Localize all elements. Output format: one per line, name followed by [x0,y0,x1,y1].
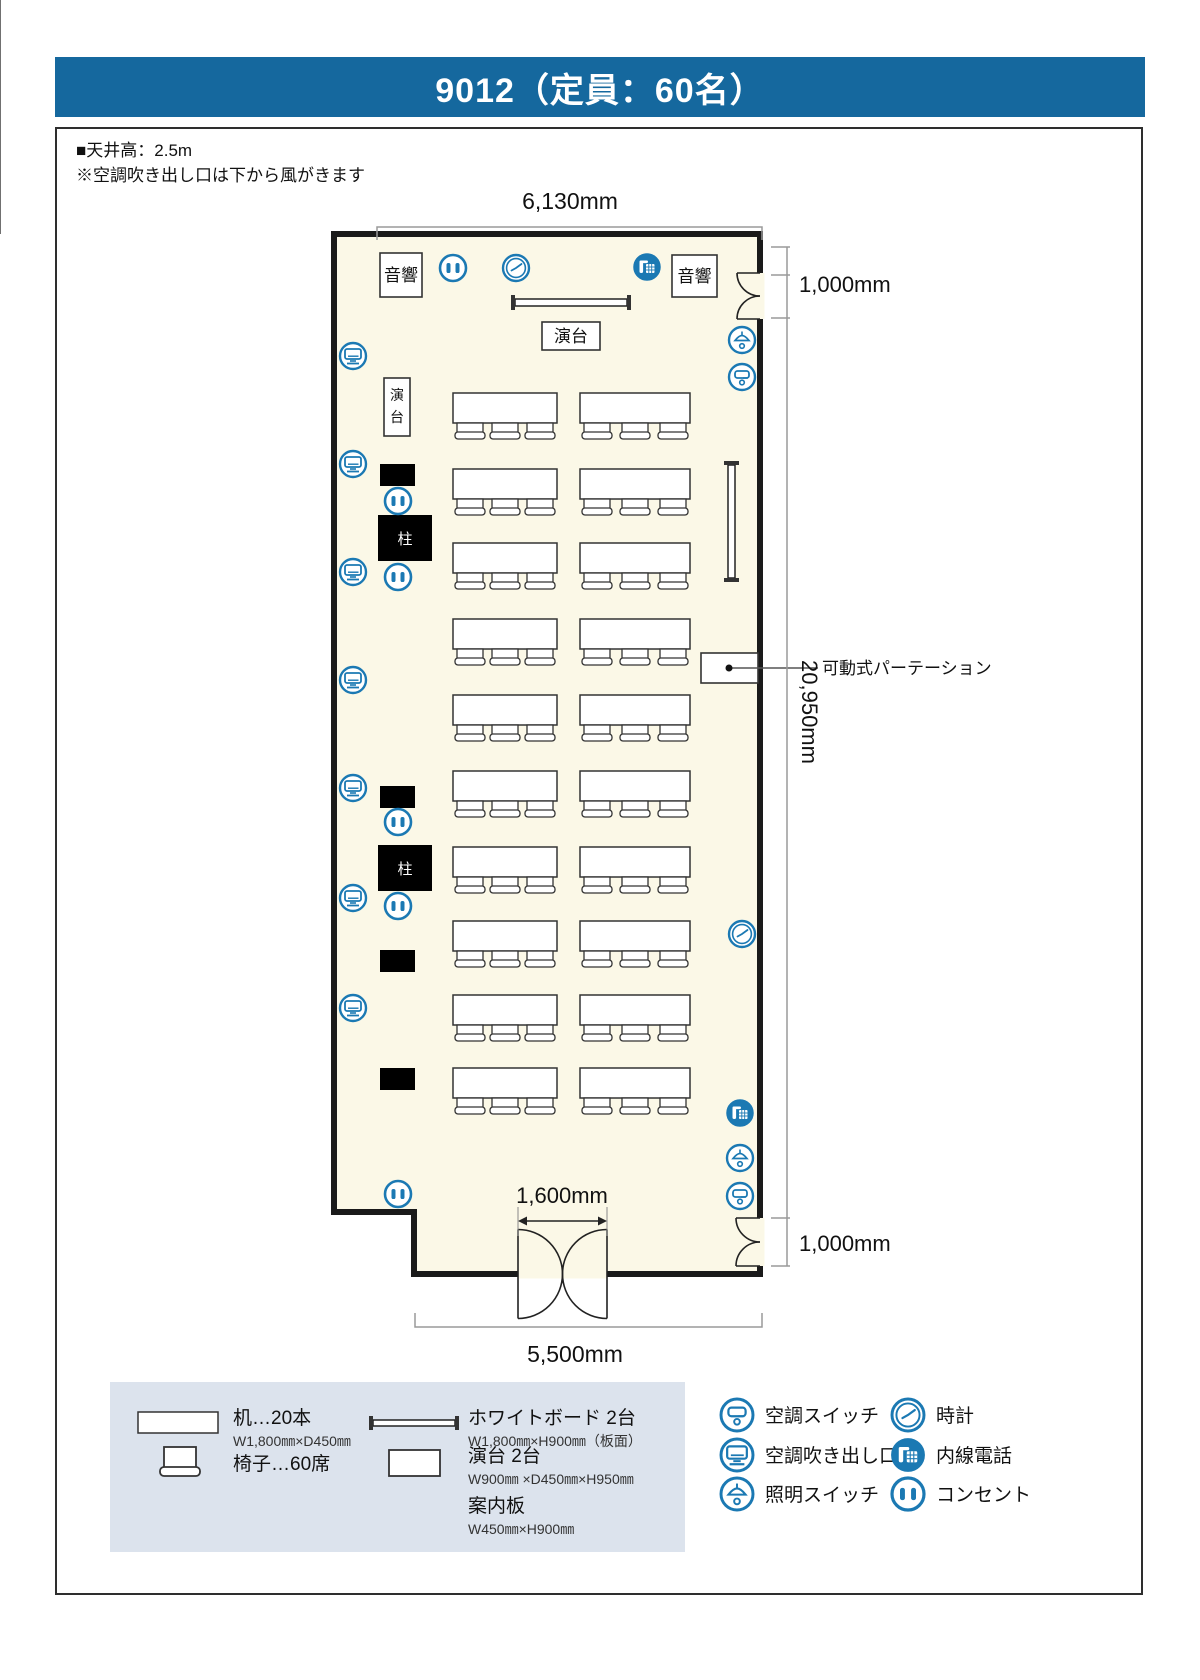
legend-whiteboard-cap [455,1416,459,1430]
legend-whiteboard-cap [369,1416,373,1430]
chair [455,423,485,439]
ac-vent-icon [721,1439,753,1471]
desk-table [453,619,557,649]
ac-switch-icon [721,1399,753,1431]
legend-icon-label: コンセント [936,1485,1031,1506]
desk-table [580,393,690,423]
partition-label: 可動式パーテーション [822,659,992,678]
legend-chair-icon [160,1447,200,1476]
whiteboard-v [728,465,735,578]
legend-icon-label: 内線電話 [936,1445,1012,1467]
chair [620,951,650,967]
legend-signboard-sub: W450㎜×H900㎜ [468,1521,574,1537]
outlet-icon [385,488,411,514]
desk-table [580,771,690,801]
desk-table [580,695,690,725]
legend-desk-sub: W1,800㎜×D450㎜ [233,1433,351,1449]
chair [455,725,485,741]
legend-icon-label: 空調スイッチ [765,1405,879,1427]
legend-desk-icon [138,1412,218,1433]
chair [525,423,555,439]
desk-table [453,771,557,801]
desk-table [453,469,557,499]
desk-table [580,469,690,499]
chair [620,725,650,741]
chair [620,499,650,515]
phone-icon [727,1100,753,1126]
ac-vent-icon [340,343,366,369]
legend-icon-label: 照明スイッチ [765,1485,879,1506]
chair [582,725,612,741]
chair [658,1098,688,1114]
legend-chair-label: 椅子…60席 [233,1453,330,1475]
legend-desk-label: 机…20本 [233,1407,311,1429]
ac-vent-icon [340,667,366,693]
chair [490,801,520,817]
ac-vent-icon [340,995,366,1021]
desk-table [580,995,690,1025]
phone-icon [892,1439,924,1471]
chair [582,877,612,893]
whiteboard-cap [627,295,631,310]
legend-podium-label: 演台 2台 [468,1445,541,1467]
chair [490,423,520,439]
dim-top: 6,130mm [522,188,618,214]
pillar-label: 柱 [397,531,412,548]
chair [620,423,650,439]
chair [658,725,688,741]
chair [582,499,612,515]
legend-podium-sub: W900㎜ ×D450㎜×H950㎜ [468,1471,634,1487]
legend-icon-label: 時計 [936,1405,974,1427]
callout-dot [726,665,733,672]
chair [490,877,520,893]
chair [455,499,485,515]
dim-right-bottom: 1,000mm [799,1231,891,1256]
chair [525,649,555,665]
legend-whiteboard-icon [373,1420,455,1426]
chair [658,499,688,515]
chair [455,951,485,967]
desk-table [580,847,690,877]
audio-label: 音響 [678,267,712,286]
desk-table [453,695,557,725]
ac-switch-icon [727,1183,753,1209]
chair [525,801,555,817]
outlet-icon [385,564,411,590]
floor-plan: 音響音響演台演台柱柱可動式パーテーション6,130mm5,500mm1,000m… [0,0,1200,1680]
chair [525,1098,555,1114]
podium-side-label: 演 [390,387,404,403]
chair [525,1025,555,1041]
ac-vent-icon [340,885,366,911]
phone-icon [634,254,660,280]
chair [490,1098,520,1114]
chair [455,801,485,817]
ac-switch-icon [729,364,755,390]
podium-side-label: 台 [390,409,404,425]
chair [525,573,555,589]
ac-vent-icon [340,775,366,801]
ac-vent-icon [340,451,366,477]
chair [620,1025,650,1041]
chair [658,423,688,439]
clock-icon [729,921,755,947]
outlet-icon [892,1478,924,1510]
chair [658,801,688,817]
whiteboard-h [515,299,627,306]
ac-vent-icon [340,559,366,585]
chair [455,573,485,589]
desk-table [580,619,690,649]
legend-signboard-label: 案内板 [468,1495,525,1517]
chair [620,877,650,893]
chair [455,1098,485,1114]
chair [658,877,688,893]
chair [490,573,520,589]
chair [525,725,555,741]
desk-table [580,1068,690,1098]
desk-table [453,543,557,573]
legend-podium-icon [389,1450,440,1476]
chair [582,801,612,817]
desk-table [453,847,557,877]
chair [582,1025,612,1041]
podium-label: 演台 [554,327,588,346]
chair [658,951,688,967]
signboard-box [380,950,415,972]
outlet-icon [385,1181,411,1207]
chair [525,877,555,893]
desk-table [453,1068,557,1098]
outlet-icon [440,255,466,281]
whiteboard-cap [511,295,515,310]
legend-icon-label: 空調吹き出し口 [765,1445,898,1467]
dim-right-middle: 20,950mm [797,660,822,764]
pillar-label: 柱 [397,861,412,878]
chair [525,499,555,515]
whiteboard-cap [724,461,739,465]
chair [620,573,650,589]
light-switch-icon [727,1145,753,1171]
chair [490,649,520,665]
chair [658,1025,688,1041]
desk-table [453,995,557,1025]
chair [490,951,520,967]
outlet-icon [385,893,411,919]
light-switch-icon [729,327,755,353]
chair [582,649,612,665]
chair [455,649,485,665]
chair [582,1098,612,1114]
chair [490,1025,520,1041]
light-switch-icon [721,1478,753,1510]
audio-label: 音響 [384,266,418,285]
desk-table [453,921,557,951]
chair [658,573,688,589]
chair [620,649,650,665]
chair [455,1025,485,1041]
dim-door: 1,600mm [516,1183,608,1208]
clock-icon [503,255,529,281]
chair [620,801,650,817]
outlet-icon [385,809,411,835]
desk-table [453,393,557,423]
signboard-box [380,464,415,486]
chair [620,1098,650,1114]
desk-table [580,543,690,573]
legend-whiteboard-label: ホワイトボード 2台 [468,1407,636,1429]
clock-icon [892,1399,924,1431]
chair [490,725,520,741]
chair [582,573,612,589]
chair [525,951,555,967]
dim-right-top: 1,000mm [799,272,891,297]
chair [658,649,688,665]
chair [490,499,520,515]
signboard-box [380,1068,415,1090]
desk-table [580,921,690,951]
dim-bottom: 5,500mm [527,1341,623,1367]
page: 9012（定員：60名） ■天井高：2.5m ※空調吹き出し口は下から風がきます… [0,0,1200,1680]
chair [582,423,612,439]
signboard-box [380,786,415,808]
whiteboard-cap [724,578,739,582]
chair [582,951,612,967]
chair [455,877,485,893]
